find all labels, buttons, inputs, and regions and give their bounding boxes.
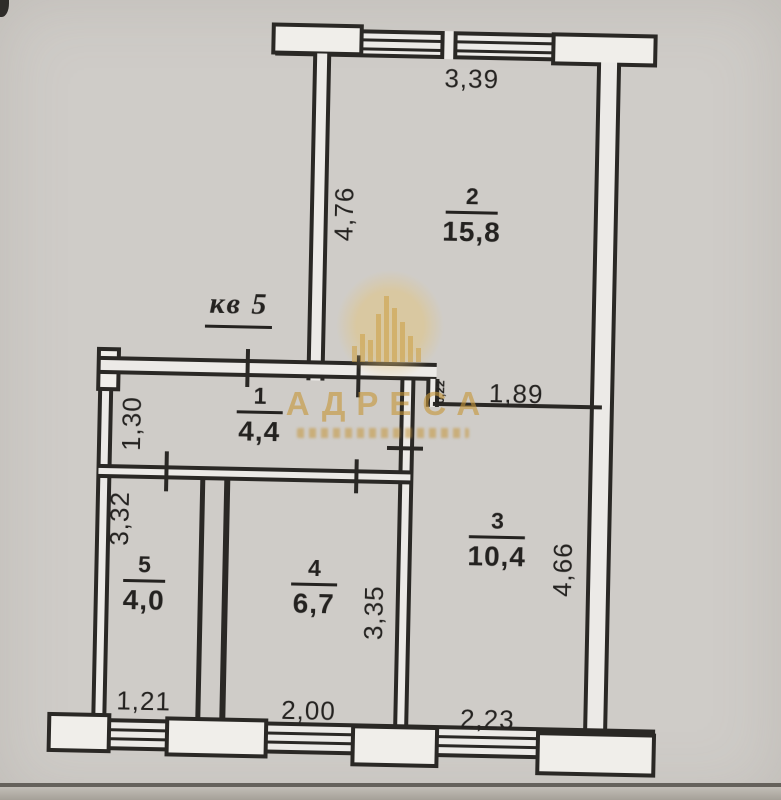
wall-room2-left: [306, 53, 331, 380]
dimension-tick: [245, 349, 250, 387]
room-area: 10,4: [467, 542, 526, 571]
dimension-room2-bottom-right: 1,89: [489, 380, 544, 407]
room-label-5: 5 4,0: [122, 553, 165, 615]
scanned-floor-plan-photo: кв 5 2 15,8 1 4,4 3 10,4 4 6,7 5 4,0 3,: [0, 0, 781, 800]
paper-bottom-edge-shadow: [0, 787, 781, 800]
window-mullion: [440, 31, 458, 59]
wall-pier-bottom-1: [47, 712, 112, 753]
dimension-bottom-left-window: 1,21: [116, 687, 171, 714]
room-label-3: 3 10,4: [467, 509, 527, 571]
wall-pier-bottom-2: [164, 716, 268, 758]
room-area: 15,8: [442, 218, 501, 247]
dimension-tick: [387, 446, 423, 451]
dimension-room2-left-height: 4,76: [330, 186, 357, 241]
dimension-top-width: 3,39: [444, 65, 499, 92]
dimension-bottom-right-window: 2,23: [460, 706, 515, 733]
dimension-tick: [164, 451, 169, 491]
wall-room5-room4-a: [195, 480, 205, 726]
room-number: 3: [491, 510, 504, 533]
wall-pier-bottom-4: [535, 731, 656, 778]
wall-pier-top-left: [271, 22, 364, 56]
dimension-hall-left: 1,30: [118, 396, 145, 451]
fraction-line: [446, 211, 498, 215]
room-label-2: 2 15,8: [442, 185, 502, 247]
fraction-line: [291, 582, 337, 586]
apartment-label: кв 5: [205, 287, 273, 329]
dimension-room3-right: 4,66: [549, 542, 576, 597]
dimension-tick: [354, 459, 359, 493]
wall-room5-room4-b: [219, 481, 230, 727]
dimension-bottom-middle-window: 2,00: [281, 697, 336, 724]
watermark-title: АДРЕСА: [275, 385, 491, 423]
dimension-room4-right: 3,35: [360, 585, 387, 640]
watermark-building-icon: [336, 270, 444, 380]
room-label-4: 4 6,7: [290, 556, 337, 618]
wall-pier-bottom-3: [350, 724, 439, 768]
room-number: 5: [138, 553, 151, 576]
fraction-line: [469, 535, 525, 539]
room-number: 4: [308, 557, 321, 580]
dimension-room5-left: 3,32: [106, 491, 133, 546]
watermark-subtitle-illegible: [297, 428, 469, 438]
wall-hall-bottom: [98, 464, 410, 485]
room-area: 6,7: [292, 590, 335, 619]
room-area: 4,0: [122, 586, 165, 615]
fraction-line: [123, 579, 165, 583]
room-number: 1: [253, 385, 266, 408]
room-number: 2: [466, 185, 479, 208]
